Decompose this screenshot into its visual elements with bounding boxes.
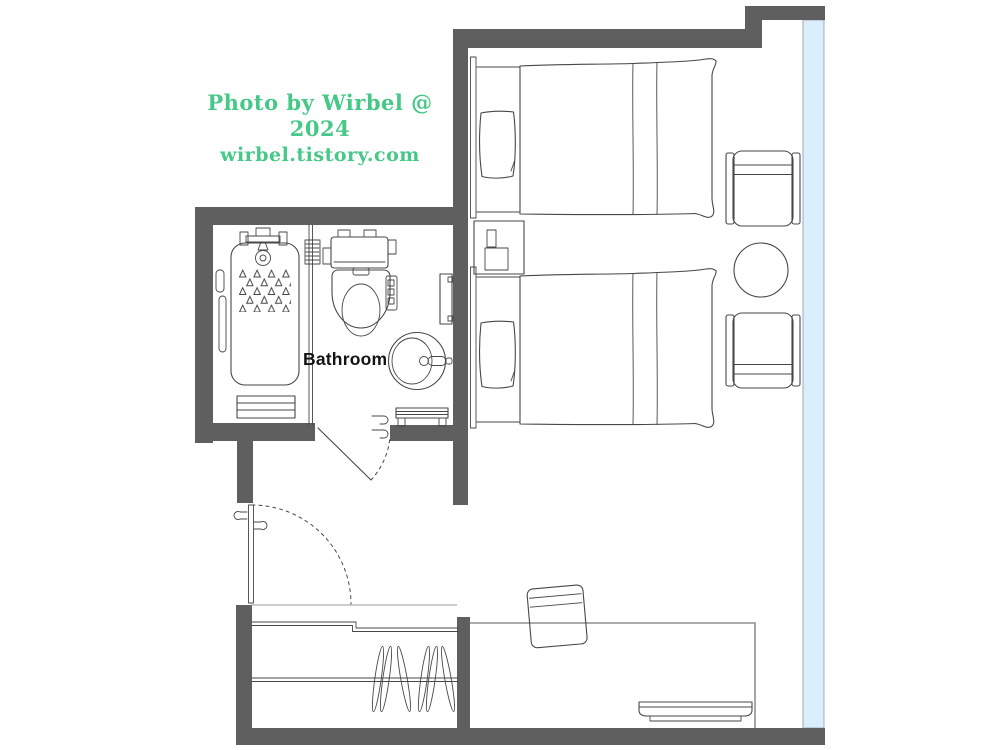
towel-rack	[440, 274, 453, 324]
watermark: Photo by Wirbel @ 2024 wirbel.tistory.co…	[185, 90, 455, 167]
window-wall	[803, 20, 824, 728]
wall-entry-upper	[237, 441, 253, 503]
washbasin	[389, 333, 453, 390]
armchair-lower	[726, 313, 800, 388]
desk-area	[470, 585, 755, 728]
glass-partition	[309, 225, 313, 425]
desk	[470, 623, 755, 728]
entry-door	[234, 505, 351, 604]
clothes-hangers	[370, 646, 457, 712]
desk-chair	[527, 585, 588, 649]
shower-head	[256, 242, 271, 266]
closet-shelf	[252, 622, 458, 632]
wall-bottom	[236, 728, 825, 745]
wall-top-right	[758, 6, 825, 20]
bath-step	[237, 396, 295, 418]
wall-bath-bottom-left	[195, 423, 315, 441]
round-table	[734, 243, 788, 297]
bedroom	[471, 57, 801, 428]
toilet-bidet	[323, 230, 397, 336]
wall-entry-lower	[236, 605, 252, 745]
bath-bench	[396, 408, 448, 426]
grab-bar	[216, 270, 226, 352]
bathtub	[231, 228, 299, 385]
wall-bath-top	[195, 207, 455, 225]
nightstand	[474, 221, 524, 274]
wall-closet-right	[457, 617, 470, 728]
floor-plan-drawing	[0, 0, 1000, 750]
twin-bed-upper	[471, 57, 717, 218]
wall-bath-left	[195, 207, 213, 443]
wall-top-left	[453, 29, 750, 48]
lamp	[485, 248, 508, 270]
vent-grille	[305, 240, 320, 264]
watermark-line2: wirbel.tistory.com	[185, 143, 455, 168]
tv	[639, 702, 752, 721]
phone	[487, 230, 496, 247]
closet	[251, 605, 458, 712]
bathroom-label: Bathroom	[303, 349, 393, 370]
wall-bath-bottom-right	[390, 425, 468, 441]
twin-bed-lower	[471, 267, 717, 428]
watermark-line1: Photo by Wirbel @ 2024	[185, 90, 455, 143]
anti-slip-pattern	[239, 269, 291, 312]
armchair-upper	[726, 151, 800, 226]
floor-plan: Photo by Wirbel @ 2024 wirbel.tistory.co…	[0, 0, 1000, 750]
bathroom-door	[318, 416, 390, 480]
